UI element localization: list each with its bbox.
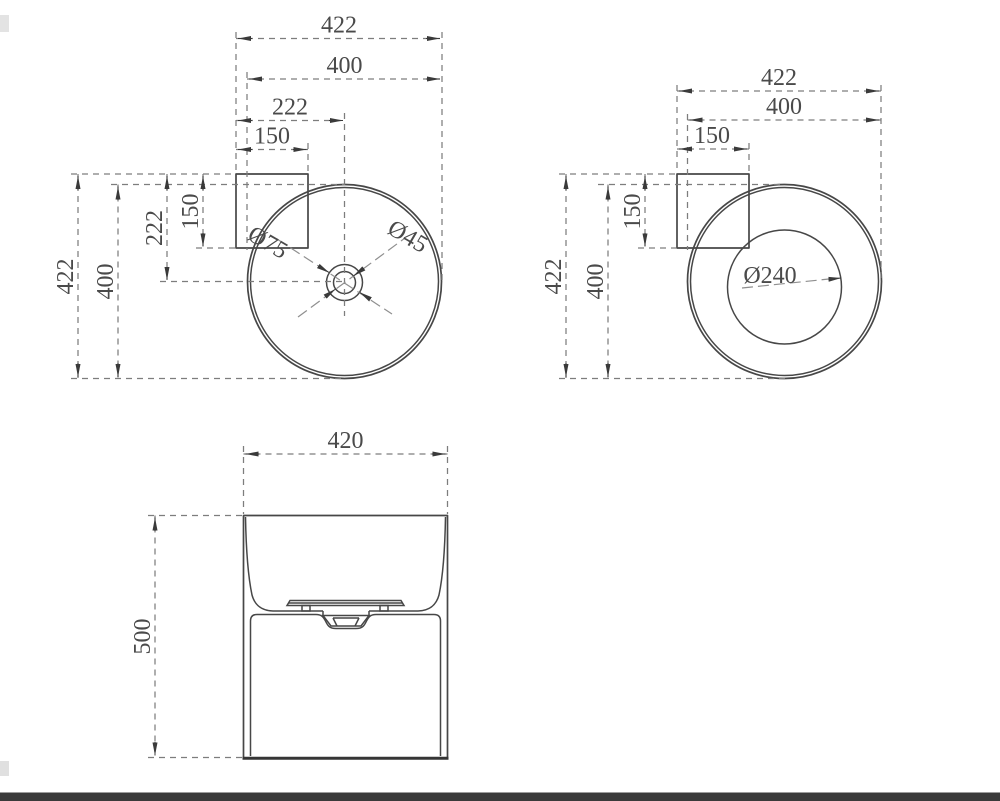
dia75-leader-line	[277, 239, 392, 314]
view2-labels: 422 400 150 422 400 150 Ø240	[541, 65, 802, 300]
page-footer-bar	[0, 793, 1000, 801]
basin-outer-silhouette	[244, 516, 448, 758]
dim-label: 222	[272, 95, 308, 121]
view-top-left: 422 400 222 150 422 400 222 150 Ø75 Ø45	[53, 13, 442, 379]
dim-label: 422	[53, 259, 79, 295]
dia45-leader-line	[298, 238, 405, 317]
dim-label: 400	[766, 94, 802, 120]
diameter-label: Ø240	[743, 263, 796, 289]
dim-label: 150	[254, 124, 290, 150]
dim-label: 400	[327, 53, 363, 79]
dim-label: 150	[694, 123, 730, 149]
dim-label: 222	[142, 210, 168, 246]
view1-dimension-lines	[71, 32, 442, 379]
bowl-wall-left	[246, 517, 324, 611]
drain-cone-inner	[333, 618, 359, 626]
dim-label: 422	[761, 65, 797, 91]
view1-geometry	[236, 174, 442, 379]
scan-artifact	[0, 15, 9, 32]
view1-diameter-leaders	[277, 238, 405, 317]
bowl-wall-right	[369, 517, 446, 611]
dim-label: 422	[321, 13, 357, 39]
view3-geometry	[243, 516, 449, 759]
diameter-label: Ø45	[383, 215, 432, 258]
plate-leg-right	[380, 606, 388, 612]
technical-drawing-page: 422 400 222 150 422 400 222 150 Ø75 Ø45	[0, 0, 1000, 801]
scan-artifact	[0, 761, 9, 776]
view-front: 420 500	[130, 428, 449, 758]
dim-label: 422	[541, 259, 567, 295]
pedestal-inner-outline	[251, 615, 441, 757]
view1-labels: 422 400 222 150 422 400 222 150 Ø75 Ø45	[53, 13, 432, 300]
dim-label: 420	[328, 428, 364, 454]
dim-label: 400	[93, 264, 119, 300]
dim-label: 400	[583, 264, 609, 300]
drawing-canvas: 422 400 222 150 422 400 222 150 Ø75 Ø45	[0, 0, 1000, 801]
view-top-right: 422 400 150 422 400 150 Ø240	[541, 65, 882, 379]
plate-leg-left	[302, 606, 310, 612]
dim-label: 150	[620, 194, 646, 230]
dim-label: 500	[130, 619, 156, 655]
drain-cone	[323, 616, 369, 627]
dim-label: 150	[178, 194, 204, 230]
